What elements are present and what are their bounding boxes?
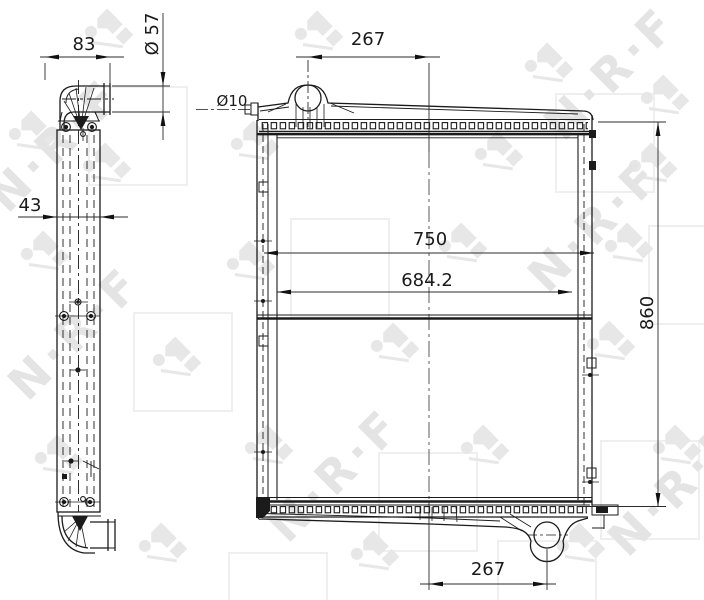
front-view (196, 85, 618, 562)
side-fasteners (55, 123, 100, 507)
top-tank (196, 85, 593, 138)
dim-label-drain-offset-bottom: 267 (471, 559, 505, 580)
dim-label-core-width: 684.2 (401, 270, 453, 291)
bottom-outlet-pipe (58, 512, 115, 553)
side-view (55, 80, 115, 553)
radiator-dimension-drawing: 83 Ø 57 43 267 Ø10 750 684.2 860 267 (0, 0, 704, 600)
dim-label-bleed-port-diameter: Ø10 (217, 92, 248, 110)
dim-label-side-depth: 43 (19, 195, 42, 216)
dim-label-pipe-top-diameter: Ø 57 (142, 13, 163, 56)
dim-label-pipe-top-width: 83 (73, 34, 96, 55)
dim-label-filler-offset-top: 267 (351, 29, 385, 50)
technical-drawing-page: N·R·FN·R·FN·R·FN·R·FN·R·FN·R·F (0, 0, 704, 600)
dim-label-overall-height: 860 (637, 296, 658, 330)
dimension-lines (18, 13, 666, 590)
dim-label-overall-width: 750 (413, 229, 447, 250)
